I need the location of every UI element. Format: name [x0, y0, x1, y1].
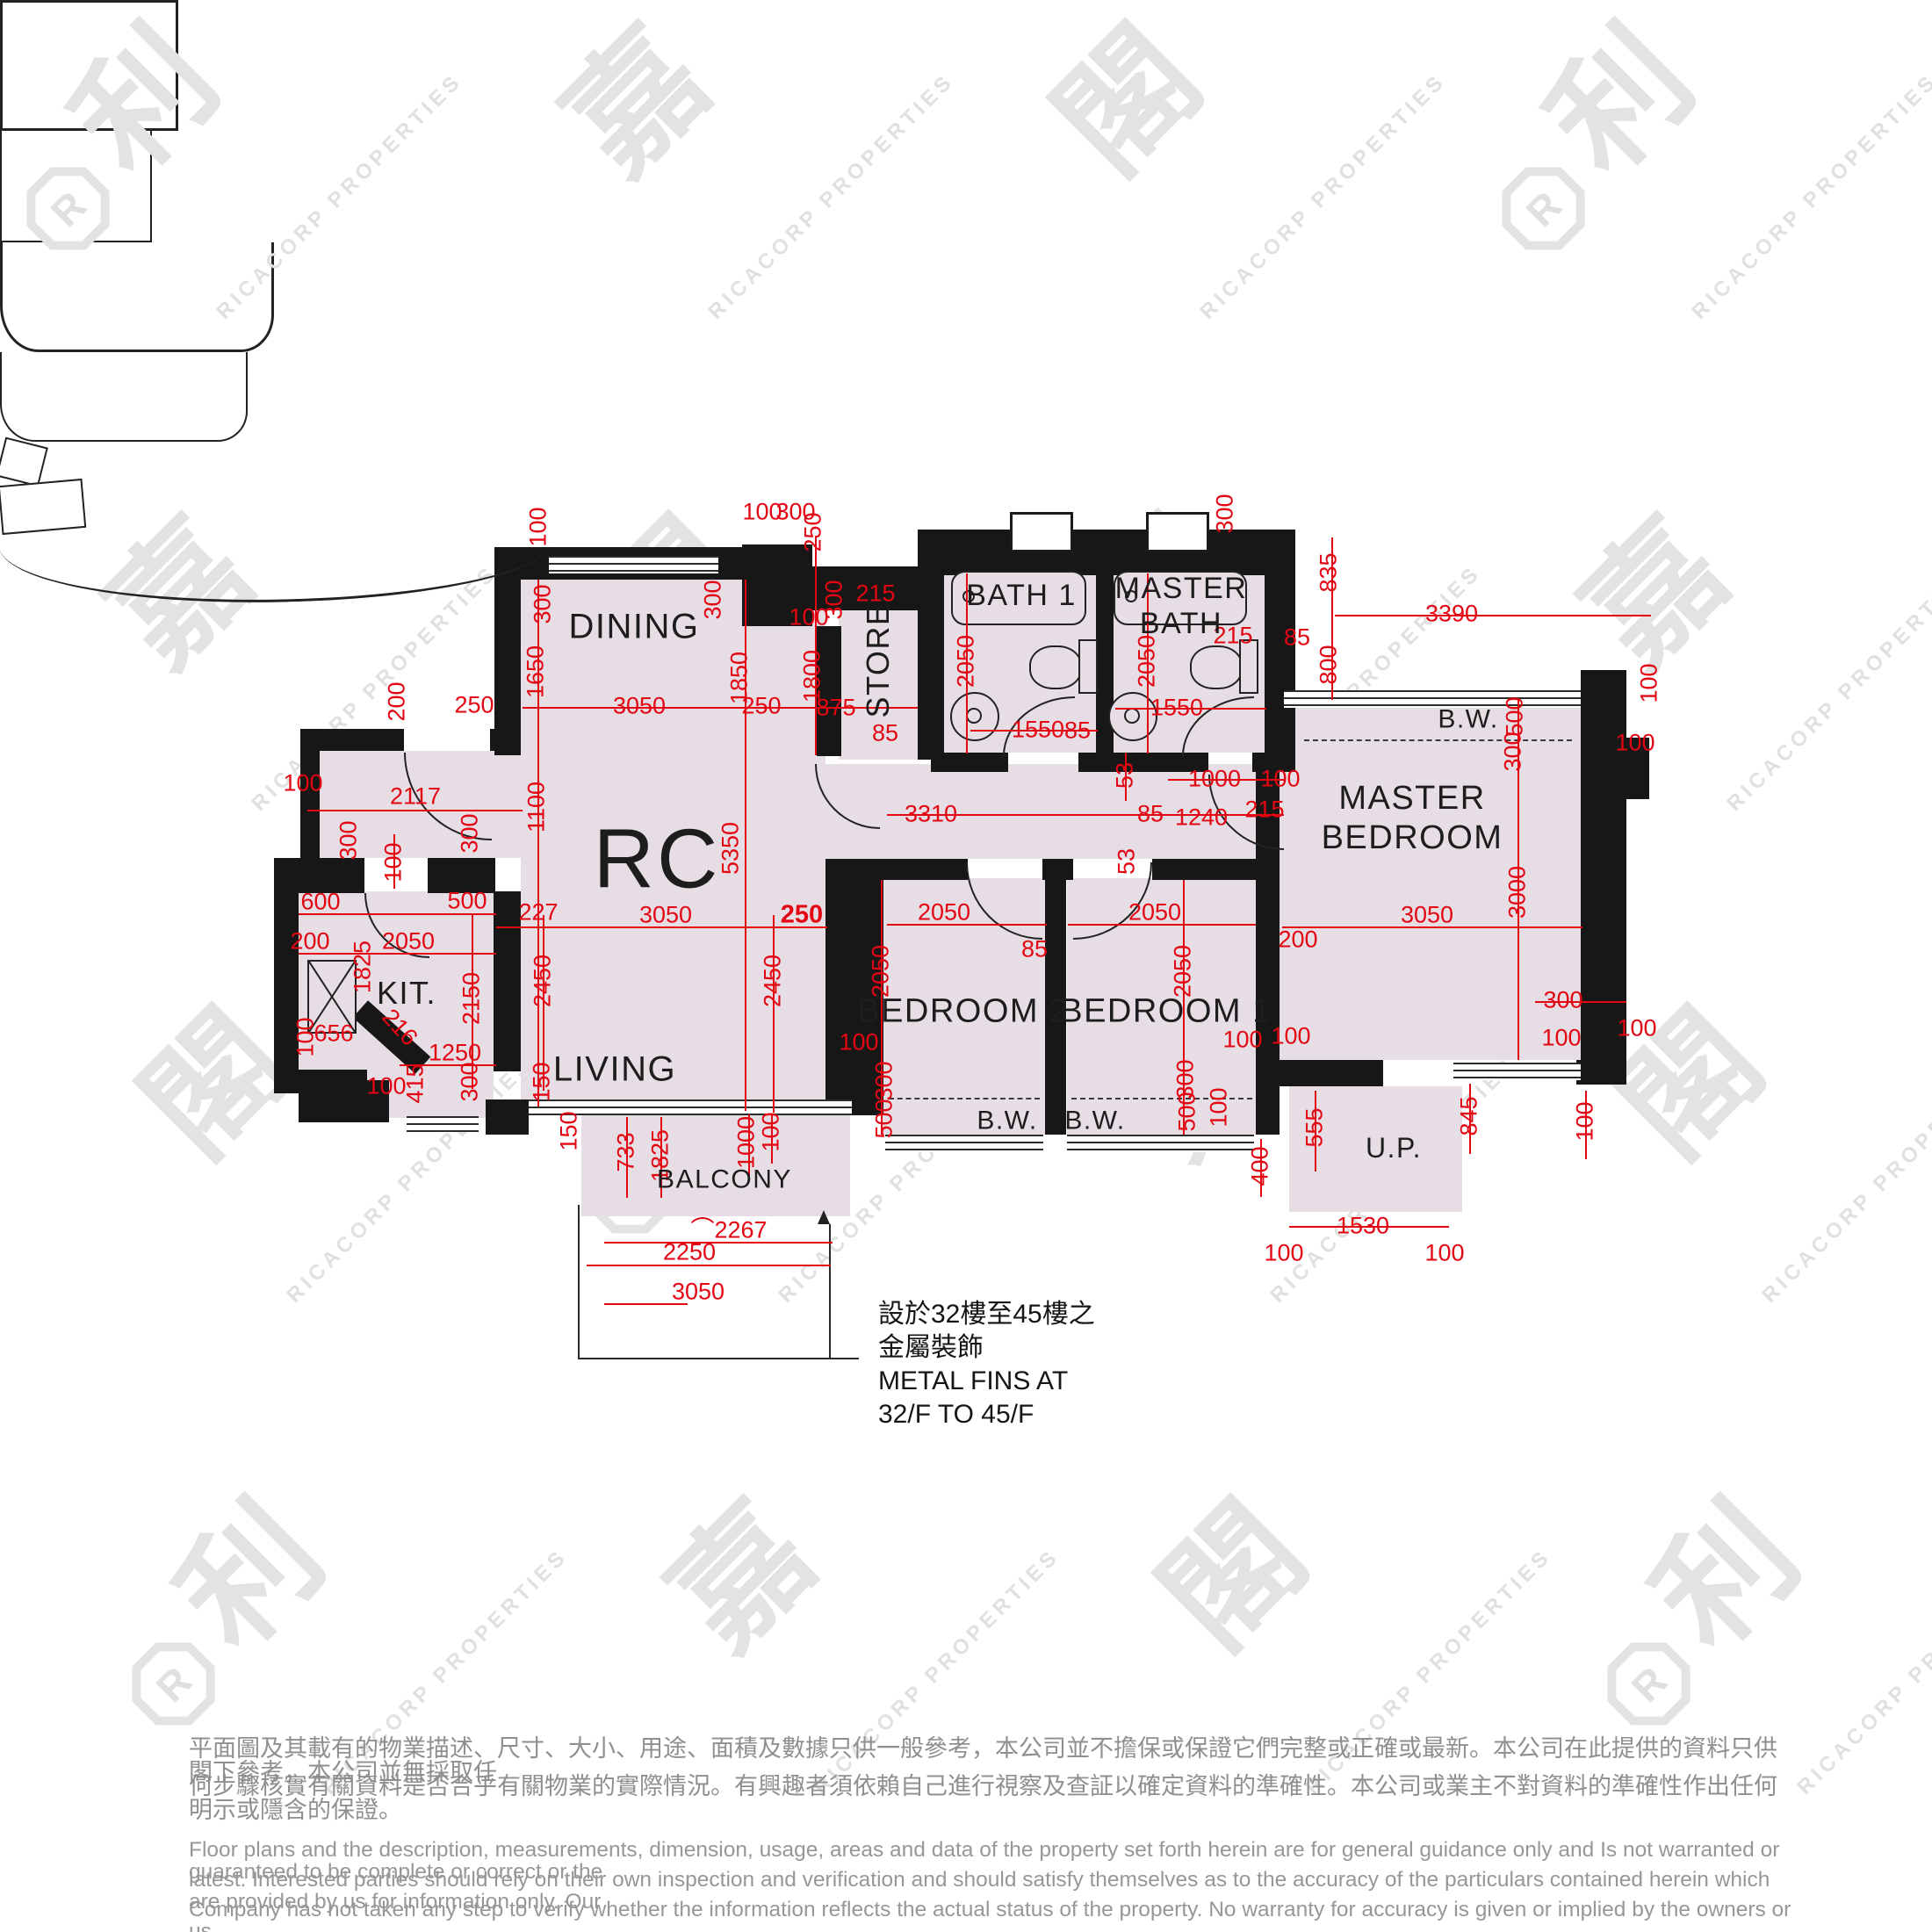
ricacorp-logo-icon: R [1590, 1625, 1707, 1742]
dimension-label: 100 [1260, 768, 1300, 791]
dimension-label: 100 [366, 1075, 406, 1099]
dimension-line [815, 536, 817, 755]
dimension-line [1335, 615, 1651, 616]
dimension-label: 2450 [531, 955, 555, 1007]
dimension-line [523, 707, 918, 709]
window-kitchen [407, 1116, 479, 1132]
room-label-bedroom2: BEDROOM 2 [857, 992, 1070, 1032]
room-label-line: BEDROOM 2 [857, 992, 1070, 1032]
toilet-master-bath [1190, 645, 1243, 689]
dimension-label: 300 [531, 584, 555, 624]
room-label-line: DINING [569, 606, 700, 647]
dimension-label: 5350 [719, 822, 743, 875]
leader-line [578, 1205, 580, 1359]
leader-arrow-icon [818, 1210, 830, 1224]
dimension-label: 3390 [1425, 602, 1478, 626]
room-label-bw-bedroom2: B.W. [977, 1105, 1037, 1135]
basin-tap-icon [966, 708, 982, 724]
dimension-label: 250 [781, 903, 823, 928]
dimension-label: 500 [447, 890, 487, 913]
dimension-label: 733 [615, 1132, 638, 1171]
dimension-label: 2050 [955, 635, 978, 688]
wall [931, 753, 1008, 772]
window-bedroom2-bw [885, 1135, 1043, 1152]
dimension-label: 150 [530, 1062, 554, 1101]
dimension-label: 2050 [1171, 945, 1195, 998]
balcony-planter-right [0, 479, 86, 535]
room-label-line: BEDROOM 1 [1060, 992, 1272, 1032]
dimension-label: 300 [1543, 989, 1582, 1013]
dimension-label: 2250 [663, 1241, 716, 1265]
dimension-label: 3050 [613, 695, 666, 718]
dimension-label: 300 [823, 580, 847, 619]
dimension-label: 100 [1207, 1087, 1231, 1127]
dimension-label: 100 [527, 507, 551, 546]
room-label-dining: DINING [569, 606, 700, 647]
window-master-bw [1284, 690, 1581, 708]
dimension-label: 85 [1064, 719, 1091, 743]
dimension-label: 250 [454, 694, 494, 717]
dimension-label: 1100 [525, 782, 549, 833]
dimension-line [307, 810, 523, 811]
wall [1042, 859, 1073, 880]
disclaimer-en-line3: Company has not taken any step to verify… [189, 1900, 1796, 1932]
dimension-label: 300 [1214, 494, 1237, 533]
bay-window-dash-line [889, 1098, 1040, 1099]
dimension-label: 200 [1278, 928, 1317, 952]
dimension-label: 250 [802, 512, 825, 551]
dimension-label: 300 [337, 820, 361, 860]
metal-fins-note-line: 設於32樓至45樓之 [878, 1298, 1095, 1331]
wall [1152, 859, 1256, 880]
dimension-label: 500 [1503, 696, 1527, 736]
metal-fins-note-line: 32/F TO 45/F [878, 1398, 1095, 1431]
metal-fins-note: 設於32樓至45樓之金屬裝飾METAL FINS AT32/F TO 45/F [878, 1298, 1095, 1431]
dimension-label: 100 [1424, 1242, 1464, 1265]
dimension-label: 100 [1264, 1242, 1303, 1265]
dimension-label: 415 [404, 1063, 428, 1103]
dimension-line [773, 915, 775, 1113]
room-label-line: BALCONY [657, 1164, 792, 1194]
dimension-label: 2150 [460, 972, 484, 1025]
room-label-line: B.W. [1438, 703, 1498, 734]
wall [918, 575, 944, 760]
dimension-label: 1000 [1188, 768, 1241, 791]
room-label-line: LIVING [553, 1049, 676, 1090]
dimension-label: 85 [1137, 803, 1164, 826]
wall [494, 891, 521, 1071]
leader-line [829, 1224, 831, 1359]
dimension-label: 100 [839, 1031, 878, 1055]
wall [1265, 530, 1295, 772]
dimension-label: 215 [855, 582, 895, 606]
dimension-label: 300 [458, 1062, 482, 1101]
room-label-line: KIT. [377, 975, 436, 1012]
dimension-label: 100 [382, 842, 406, 882]
bay-window-dash-line [1304, 739, 1572, 741]
dimension-label: 600 [300, 890, 340, 914]
dimension-label: 100 [283, 772, 322, 796]
watermark-character: 閣 [1141, 1483, 1327, 1669]
dimension-label: 100 [760, 1112, 783, 1151]
dimension-label: 2450 [761, 955, 785, 1007]
dimension-label: 85 [1021, 938, 1048, 962]
room-label-master-bath: MASTERBATH [1115, 571, 1248, 641]
room-label-up: U.P. [1366, 1132, 1422, 1165]
balcony-parapet-inner [0, 352, 248, 442]
room-label-bw-master: B.W. [1438, 703, 1498, 734]
dimension-label: 2050 [869, 945, 893, 998]
leader-line [578, 1358, 859, 1359]
wall [1576, 1060, 1626, 1085]
dimension-label: 3050 [1401, 904, 1453, 927]
watermark-character: 嘉 [649, 1483, 835, 1669]
dimension-label: 85 [1284, 626, 1310, 650]
dimension-label: 400 [1249, 1146, 1272, 1186]
dimension-label: 100 [294, 1017, 318, 1056]
dimension-label: 100 [1271, 1025, 1310, 1049]
room-label-line: BATH [1115, 606, 1248, 641]
wall [883, 859, 968, 880]
dimension-label: 1240 [1175, 806, 1228, 830]
room-label-line: STORE [860, 603, 897, 718]
dimension-label: 300 [702, 580, 725, 619]
dimension-label: 100 [1541, 1027, 1581, 1050]
room-label-line: BEDROOM [1322, 818, 1503, 858]
dimension-label: 2050 [1135, 635, 1159, 688]
room-label-bedroom1: BEDROOM 1 [1060, 992, 1272, 1032]
metal-fins-note-line: 金屬裝飾 [878, 1331, 1095, 1365]
wall [486, 1099, 529, 1135]
dimension-label: 1650 [524, 645, 548, 698]
wall [300, 729, 404, 751]
dimension-label: 200 [290, 930, 329, 954]
dimension-label: 2050 [918, 901, 970, 925]
room-label-line: MASTER [1115, 571, 1248, 606]
dimension-label: 1000 [735, 1116, 759, 1169]
dimension-label: 150 [558, 1111, 581, 1150]
basin-tap-icon [1124, 708, 1140, 724]
room-label-store: STORE [860, 603, 897, 718]
dimension-label: 835 [1317, 552, 1341, 592]
dimension-label: 85 [872, 722, 898, 746]
dimension-label: 100 [1615, 732, 1654, 755]
room-label-bath1: BATH 1 [966, 578, 1077, 613]
balcony-planter-left [0, 437, 48, 487]
window-master-bottom [1453, 1063, 1581, 1080]
dimension-label: 1550 [1012, 718, 1064, 742]
dimension-label: 3000 [1506, 866, 1530, 919]
dimension-label: 300 [458, 813, 482, 853]
dimension-label: 100 [1617, 1017, 1656, 1041]
dimension-label: 227 [518, 901, 558, 925]
ricacorp-logo-icon: R [114, 1625, 232, 1742]
room-label-living: LIVING [553, 1049, 676, 1090]
floor-plan-page: 利RICACORP PROPERTIESR嘉RICACORP PROPERTIE… [0, 0, 1932, 1932]
dimension-label: 1550 [1150, 696, 1203, 720]
dimension-label: 2117 [390, 785, 441, 809]
dimension-label: 53 [1115, 848, 1139, 875]
toilet-bath1 [1029, 645, 1082, 689]
room-label-line: MASTER [1322, 779, 1503, 818]
window-bedroom1-bw [1067, 1135, 1254, 1152]
dimension-label: 100 [1222, 1028, 1262, 1052]
room-label-master-bedroom: MASTERBEDROOM [1322, 779, 1503, 858]
dimension-label: 100 [1574, 1101, 1597, 1141]
room-label-rc: RC [594, 809, 721, 908]
logo-letter: R [1590, 1625, 1707, 1742]
logo-letter: R [114, 1625, 232, 1742]
room-label-line: U.P. [1366, 1132, 1422, 1165]
wall [490, 729, 521, 751]
dimension-label: 1530 [1337, 1215, 1389, 1238]
wall [274, 893, 299, 1093]
dimension-label: 555 [1303, 1107, 1327, 1147]
dimension-label: 800 [1317, 645, 1341, 684]
dimension-label: 300 [873, 1061, 897, 1100]
dimension-label: 656 [314, 1022, 353, 1046]
window-slot [1146, 512, 1209, 552]
dimension-label: 2050 [1128, 901, 1181, 925]
dimension-label: 100 [1638, 663, 1662, 703]
disclaimer-zh-line2: 何步驟核實有關資料是否合乎有關物業的實際情況。有興趣者須依賴自己進行視察及查証以… [189, 1775, 1796, 1822]
logo-octagon: R [1590, 1625, 1707, 1742]
room-label-bw-bedroom1: B.W. [1064, 1105, 1125, 1135]
dimension-label: 2050 [382, 930, 435, 954]
toilet-tank-bath1 [1078, 639, 1098, 694]
dimension-label: 1250 [429, 1042, 481, 1065]
dimension-label: 3050 [672, 1280, 724, 1304]
dimension-label: 200 [386, 681, 409, 721]
dimension-label: 300 [1502, 732, 1525, 771]
room-label-line: RC [594, 809, 721, 908]
dimension-label: 1825 [351, 941, 375, 993]
room-label-kitchen: KIT. [377, 975, 436, 1012]
dimension-label: 250 [741, 695, 781, 718]
wall [1280, 1060, 1383, 1086]
dimension-label: 53 [1114, 762, 1137, 789]
wall [300, 751, 320, 858]
room-label-balcony: BALCONY [657, 1164, 792, 1194]
logo-octagon: R [114, 1625, 232, 1742]
room-label-line: BATH 1 [966, 578, 1077, 613]
window-dining [549, 556, 718, 573]
dimension-label: 3310 [905, 803, 957, 826]
window-slot [1010, 512, 1073, 552]
dimension-label: 215 [1244, 798, 1284, 822]
dimension-label: 500 [1176, 1092, 1200, 1131]
wall [299, 1070, 367, 1122]
room-label-line: B.W. [1064, 1105, 1125, 1135]
dimension-label: 500 [873, 1099, 897, 1138]
metal-fins-note-line: METAL FINS AT [878, 1365, 1095, 1398]
room-label-line: B.W. [977, 1105, 1037, 1135]
dimension-label: 875 [816, 696, 855, 720]
dimension-label: 845 [1458, 1096, 1481, 1135]
